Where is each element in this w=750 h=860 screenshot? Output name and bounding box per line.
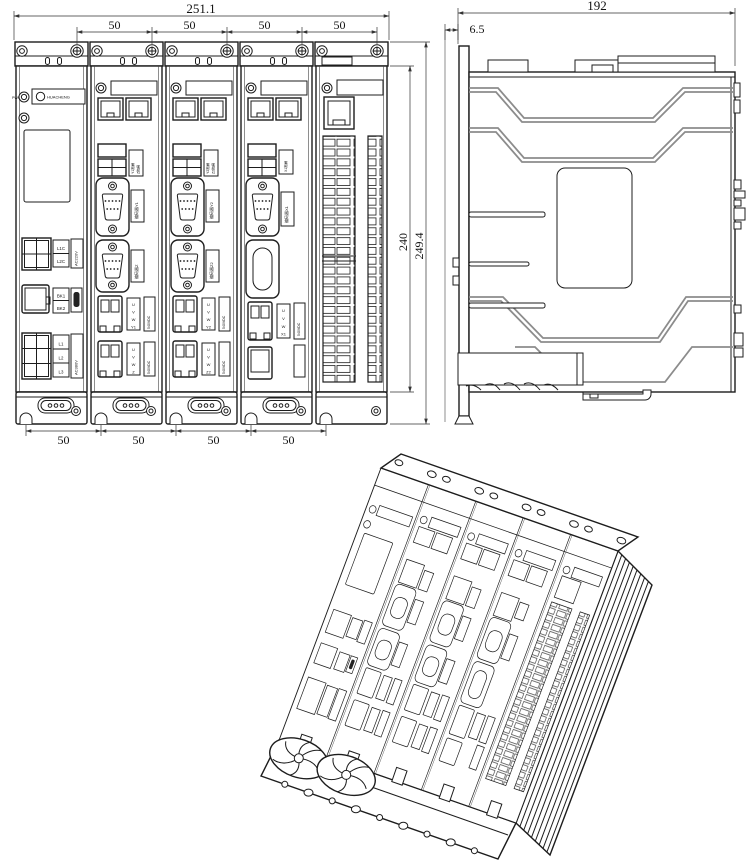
status-led	[246, 83, 256, 93]
rj45-port	[276, 98, 301, 120]
alarm-led	[19, 113, 29, 123]
svg-text:编码器Y1: 编码器Y1	[133, 201, 139, 219]
svg-text:192: 192	[587, 0, 607, 13]
io-terminal-strip-left	[322, 136, 356, 382]
front-view: PWR HUACHENG L1C L2C AC220V BK1 BK2	[0, 0, 440, 450]
svg-text:U: U	[207, 302, 210, 307]
svg-text:50: 50	[109, 18, 121, 32]
svg-text:50: 50	[259, 18, 271, 32]
module-base-2	[91, 392, 162, 424]
svg-text:X1: X1	[281, 332, 287, 337]
svg-text:6.5: 6.5	[470, 22, 485, 36]
svg-text:540VDC: 540VDC	[222, 315, 226, 329]
svg-text:Z抱闸: Z抱闸	[136, 164, 141, 174]
svg-text:540VDC: 540VDC	[222, 360, 226, 374]
status-led	[322, 83, 332, 93]
dim-body-height: 240	[390, 66, 414, 392]
module-cap-4	[240, 42, 313, 66]
side-window	[557, 168, 632, 288]
module-base-4	[241, 392, 312, 424]
svg-text:编码器Y2: 编码器Y2	[208, 201, 214, 219]
svg-text:V: V	[207, 355, 210, 360]
label-window	[337, 80, 383, 95]
front-panel-window	[24, 130, 70, 202]
svg-text:编码器Z2: 编码器Z2	[208, 262, 214, 279]
svg-text:BK2: BK2	[57, 306, 66, 311]
brand-text: HUACHENG	[47, 95, 70, 100]
motor-connector: U V W Y1 540VDC	[98, 296, 155, 332]
control-power-terminal: L1C L2C AC220V	[22, 238, 83, 270]
power-led	[19, 92, 29, 102]
svg-text:50: 50	[58, 433, 70, 447]
svg-text:U: U	[132, 347, 135, 352]
svg-text:240: 240	[396, 233, 410, 251]
rj45-port	[248, 98, 273, 120]
svg-text:U: U	[132, 302, 135, 307]
svg-text:540VDC: 540VDC	[297, 322, 301, 336]
svg-text:Y1: Y1	[131, 325, 137, 330]
svg-text:W: W	[132, 362, 136, 367]
svg-text:L2C: L2C	[57, 259, 65, 264]
svg-text:编码器Z: 编码器Z	[133, 264, 139, 279]
module-cap-1	[15, 42, 88, 66]
module-top-caps	[15, 42, 388, 66]
rj45-port	[201, 98, 226, 120]
label-window	[186, 81, 232, 95]
svg-text:V: V	[207, 310, 210, 315]
module-cap-3	[165, 42, 238, 66]
svg-text:L2: L2	[59, 356, 64, 361]
module-base-5	[316, 392, 387, 424]
svg-text:X1抱闸: X1抱闸	[283, 160, 288, 172]
svg-text:Y1抱闸: Y1抱闸	[130, 162, 135, 174]
dim-bottom-pitches: 50 50 50 50	[26, 425, 326, 447]
blank-dsub-cutout	[246, 240, 279, 298]
svg-text:50: 50	[334, 18, 346, 32]
svg-text:251.1: 251.1	[186, 1, 215, 16]
module-base-3	[166, 392, 237, 424]
svg-text:50: 50	[208, 433, 220, 447]
brand-plate: HUACHENG	[32, 89, 85, 104]
svg-text:50: 50	[133, 433, 145, 447]
side-body	[469, 56, 735, 392]
svg-text:50: 50	[184, 18, 196, 32]
svg-text:L1C: L1C	[57, 246, 65, 251]
svg-text:W: W	[207, 317, 211, 322]
svg-text:50: 50	[283, 433, 295, 447]
rj45-port	[98, 98, 123, 120]
rj45-port	[173, 98, 198, 120]
svg-text:W: W	[282, 324, 286, 329]
isometric-view	[250, 450, 670, 860]
svg-text:Y2抱闸: Y2抱闸	[205, 162, 210, 174]
svg-text:Z2抱闸: Z2抱闸	[211, 162, 216, 174]
label-window	[261, 81, 307, 95]
module-bases	[16, 392, 387, 424]
svg-text:249.4: 249.4	[412, 233, 426, 260]
svg-text:U: U	[207, 347, 210, 352]
side-view: 192 6.5	[440, 0, 750, 450]
module-cap-2	[90, 42, 163, 66]
main-power-terminal: L1 L2 L3 AC380V	[22, 333, 83, 379]
motor-connector: U V W Y2 540VDC	[173, 296, 230, 332]
svg-text:Y2: Y2	[206, 325, 212, 330]
svg-text:W: W	[207, 362, 211, 367]
svg-text:540VDC: 540VDC	[147, 315, 151, 329]
dim-top-pitches: 50 50 50 50	[77, 18, 377, 44]
rj45-port	[324, 97, 354, 129]
svg-text:BK1: BK1	[57, 294, 66, 299]
motor-connector: U V W X1 540VDC	[248, 302, 305, 340]
label-window	[111, 81, 157, 95]
svg-text:AC380V: AC380V	[74, 360, 79, 375]
svg-text:L3: L3	[59, 370, 64, 375]
svg-text:V: V	[132, 355, 135, 360]
cooling-fan-housing	[458, 353, 583, 390]
svg-text:W: W	[132, 317, 136, 322]
status-led	[96, 83, 106, 93]
module-cap-5	[315, 42, 388, 66]
motor-connector: U V W Z2 540VDC	[173, 341, 230, 377]
dim-front-offset: 6.5	[445, 22, 485, 40]
drawing-sheet: PWR HUACHENG L1C L2C AC220V BK1 BK2	[0, 0, 750, 860]
svg-text:AC220V: AC220V	[74, 251, 79, 266]
svg-text:编码器X1: 编码器X1	[283, 205, 289, 223]
svg-text:V: V	[132, 310, 135, 315]
status-led	[171, 83, 181, 93]
svg-text:U: U	[282, 308, 285, 313]
svg-text:540VDC: 540VDC	[147, 360, 151, 374]
rj45-port	[126, 98, 151, 120]
svg-text:V: V	[282, 316, 285, 321]
svg-text:L1: L1	[59, 342, 64, 347]
svg-text:Z2: Z2	[206, 370, 211, 375]
module-base-1	[16, 392, 87, 424]
io-terminal-strip-right	[368, 136, 382, 382]
motor-connector: U V W Z 540VDC	[98, 341, 155, 377]
